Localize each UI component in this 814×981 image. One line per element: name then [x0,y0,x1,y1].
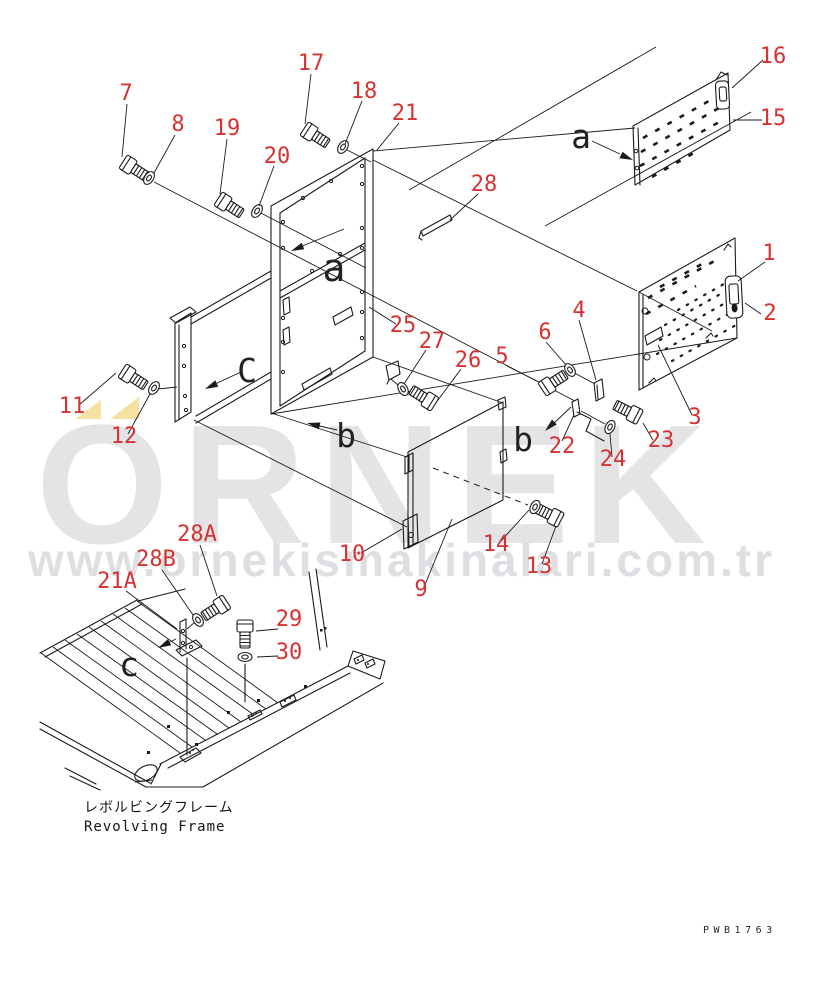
callout-10: 10 [339,542,366,567]
callout-28: 28 [471,172,498,197]
bolt-29 [237,620,253,648]
callout-29: 29 [276,607,303,632]
caption-english: Revolving Frame [84,819,225,835]
view-letter-b-left: b [336,416,356,455]
washer-20 [249,203,264,220]
callout-28A: 28A [177,522,217,547]
bolt-17 [300,122,332,151]
drawing-number: PWB1763 [703,925,777,936]
callout-20: 20 [264,144,291,169]
callout-6: 6 [538,320,551,345]
view-arrow-a-frame [291,243,304,251]
callout-26: 26 [455,348,482,373]
callout-12: 12 [111,424,138,449]
view-letter-c: c [119,645,139,684]
name-plate-3 [645,327,663,345]
view-letter-a-frame: a [323,246,346,290]
handle-28 [419,215,452,240]
callout-21: 21 [392,101,419,126]
caption-japanese: レボルビングフレーム [84,800,234,816]
parts-diagram-page: ORNEK www.ornekismakinalari.com.tr [0,0,814,981]
callout-9: 9 [414,577,427,602]
parts-diagram: ORNEK www.ornekismakinalari.com.tr [0,0,814,981]
bolt-28A [199,595,231,624]
callout-8: 8 [171,112,184,137]
callout-14: 14 [483,532,510,557]
washer-18 [335,139,350,156]
callout-4: 4 [572,298,585,323]
panel-15-perforations [640,97,721,177]
bolt-11 [118,364,150,393]
callout-15: 15 [760,106,787,131]
callout-18: 18 [351,79,378,104]
callout-30: 30 [276,640,303,665]
callout-22: 22 [549,434,576,459]
view-letter-a-top: a [571,117,591,156]
view-arrow-c [158,639,171,648]
callout-2: 2 [763,301,776,326]
callout-3: 3 [688,405,701,430]
latch-16 [715,81,729,110]
side-panel-1 [639,238,743,390]
callout-11: 11 [59,394,86,419]
view-arrow-C [205,380,218,389]
view-letter-C: C [237,351,257,390]
view-letter-b-right: b [513,420,533,459]
callout-21A: 21A [97,569,137,594]
view-arrow-a-top [620,152,634,160]
callout-27: 27 [419,329,446,354]
callout-5: 5 [495,344,508,369]
latch-2 [725,276,743,319]
callout-16: 16 [760,44,787,69]
callout-23: 23 [648,428,675,453]
callout-25: 25 [390,313,417,338]
perforated-panel-15 [633,72,730,185]
callout-1: 1 [762,241,775,266]
callout-13: 13 [526,554,553,579]
callout-19: 19 [214,116,241,141]
callout-24: 24 [600,447,627,472]
callout-7: 7 [119,81,132,106]
washer-30 [238,653,252,662]
callout-17: 17 [298,51,325,76]
revolving-frame-deck [40,569,385,790]
captions: レボルビングフレーム Revolving Frame PWB1763 [84,800,777,936]
callout-28B: 28B [136,547,176,572]
